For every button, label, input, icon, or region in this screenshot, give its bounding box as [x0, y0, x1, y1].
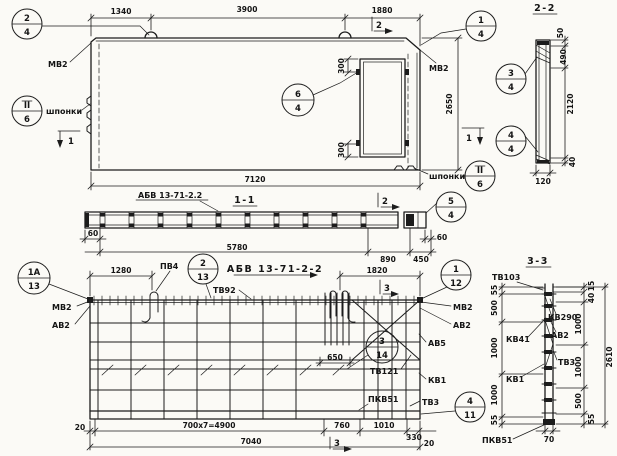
panel-outline [91, 38, 420, 170]
callout-3-14-num: 3 [379, 337, 385, 347]
cut1-right-arrow-icon [477, 137, 483, 145]
callout-3-4: 3 4 [496, 57, 537, 94]
mark-mv2-plan-left: МВ2 [52, 303, 72, 312]
dim-300-top: 300 [337, 58, 346, 74]
panel-inner-lines [96, 41, 417, 168]
kv41-leader [528, 318, 546, 337]
callout-1a-13-num: 1А [28, 268, 41, 278]
callout-4-4-sheet: 4 [508, 145, 514, 155]
keys-right-label: шпонки [429, 172, 465, 181]
dim-700x7: 700x7=4900 [183, 421, 236, 430]
dim-1340: 1340 [111, 7, 132, 16]
callout-2-13-sheet: 13 [197, 273, 209, 283]
cut2-mid-label: 2 [382, 197, 388, 207]
dim-2650: 2650 [445, 94, 454, 115]
mark-mv2-right: МВ2 [429, 64, 449, 73]
dim-1880: 1880 [372, 6, 393, 15]
dim-2650-lines [422, 38, 462, 170]
cut2-top-arrow-icon [385, 28, 393, 34]
dim-500-r: 500 [574, 393, 583, 409]
mark-pv4: ПВ4 [160, 262, 179, 271]
callout-5-4-num: 5 [448, 197, 454, 207]
section-cut-1-left: 1 [57, 131, 80, 148]
callout-1-4-leader [421, 26, 496, 45]
dim-20-left: 20 [75, 423, 85, 432]
callout-2-13-num: 2 [200, 259, 206, 269]
dim-60-right: 60 [437, 233, 447, 242]
section-2-2-dim-120-lines [530, 165, 556, 176]
dim-1280: 1280 [111, 266, 132, 275]
dim-1000-r1: 1000 [574, 314, 583, 335]
keys-right-leader [414, 168, 428, 174]
cut1-right-label: 1 [466, 134, 472, 144]
keys-left-label: шпонки [46, 107, 82, 116]
plan-loop1-icon [142, 292, 158, 322]
section-cut-3-bottom: 3 [330, 437, 352, 452]
lifting-loop-icon [145, 32, 351, 38]
mark-av2-plan-left: АВ2 [52, 321, 70, 330]
callout-5-4: 5 4 [426, 192, 466, 222]
dim-door-300-lines [344, 59, 358, 157]
cut3-top-label: 3 [384, 284, 390, 294]
dim-760: 760 [334, 421, 350, 430]
callout-II-6-left: II 6 [12, 96, 42, 126]
section-cut-3-top: 3 [380, 280, 399, 297]
dim-300-bottom: 300 [337, 142, 346, 158]
strip-left-cap [85, 213, 89, 227]
mark-kv1-plan: КВ1 [428, 376, 447, 385]
callout-1-4: 1 4 [421, 11, 496, 45]
dim-1820: 1820 [367, 266, 388, 275]
section-3-3-title: 3-3 [527, 256, 549, 267]
reinforcement-plan-view: АБВ 13-71-2-2 1280 1820 ПВ4 ТВ92 3 [52, 262, 473, 452]
dim-1010: 1010 [374, 421, 395, 430]
dim-7120: 7120 [245, 175, 266, 184]
dim-2120: 2120 [566, 94, 575, 115]
mark-pkv51-33: ПКВ51 [482, 436, 513, 445]
callout-6-4: 6 4 [282, 72, 358, 116]
cut2-top-label: 2 [376, 21, 382, 31]
callout-1a-13-sheet: 13 [28, 282, 40, 292]
section-2-2-walls [539, 44, 546, 160]
drawing-sheet: 1340 3900 1880 2 300 300 2650 7120 МВ2 М… [0, 0, 617, 456]
dim-60-left: 60 [88, 229, 98, 238]
dim-70: 70 [544, 435, 554, 444]
mv2-plan-right-leader [421, 302, 451, 306]
callout-1a-13: 1А 13 [18, 262, 88, 299]
door-opening-inner [364, 62, 402, 154]
tv3-plan-leader [410, 401, 420, 406]
callout-1-4-num: 1 [478, 16, 484, 26]
mark-pkv51-plan: ПКВ51 [368, 395, 399, 404]
section-2-2-title: 2-2 [534, 3, 556, 14]
callout-II-6-right-sheet: 6 [477, 180, 483, 190]
callout-1-12: 1 12 [421, 260, 471, 299]
door-opening [360, 59, 405, 157]
panel-working-drawing: 1340 3900 1880 2 300 300 2650 7120 МВ2 М… [0, 0, 617, 456]
mark-tv3-plan: ТВ3 [422, 398, 439, 407]
cut3-bottom-label: 3 [334, 439, 340, 449]
callout-5-4-leader [426, 203, 466, 213]
dim-40: 40 [568, 157, 577, 167]
dim-1000-r2: 1000 [574, 357, 583, 378]
cut2-mid-arrow-icon [392, 204, 400, 210]
dim-1000-l1: 1000 [490, 338, 499, 359]
panel-dashed-edges [99, 44, 408, 168]
callout-1-12-leader [421, 275, 471, 299]
mark-tv103: ТВ103 [492, 273, 520, 282]
tv92-leader [239, 290, 251, 299]
dim-500-l: 500 [490, 300, 499, 316]
door-edge-marks [356, 69, 409, 146]
callout-4-11: 4 11 [421, 392, 485, 422]
slab-mark-leader [136, 200, 218, 211]
av2-plan-left-leader [75, 306, 90, 324]
mark-av2-plan-right: АВ2 [453, 321, 471, 330]
section-1-1-title: 1-1 [234, 195, 256, 206]
cut1-left-label: 1 [68, 137, 74, 147]
callout-4-11-sheet: 11 [464, 411, 476, 421]
dim-55-r: 55 [587, 414, 596, 424]
callout-1-12-sheet: 12 [450, 279, 462, 289]
plan-lap-hooks [102, 365, 344, 375]
strip-ribs [100, 212, 366, 228]
kv1-33-leader [521, 364, 544, 377]
pv4-leader [156, 271, 170, 291]
dim-450: 450 [413, 255, 429, 264]
dim-2610: 2610 [605, 347, 614, 368]
callout-5-4-sheet: 4 [448, 211, 454, 221]
callout-4-4: 4 4 [496, 126, 538, 156]
s33-left-dim-line [499, 283, 543, 428]
callout-II-6-left-sheet: 6 [24, 115, 30, 125]
callout-3-4-leader [496, 57, 537, 79]
mark-tv3-33: ТВ3 [558, 358, 575, 367]
strip-dim-lines [80, 228, 436, 256]
section-3-3-view: 3-3 ТВ103 КВ290 АВ2 КВ41 ТВ3 КВ1 ПКВ51 5… [482, 256, 614, 445]
dim-55-tl: 55 [490, 285, 499, 295]
section-cut-1-right: 1 [462, 128, 484, 145]
keys-left-leader [82, 104, 90, 110]
callout-4-4-leader [496, 136, 538, 152]
callout-3-4-sheet: 4 [508, 83, 514, 93]
plan-horizontal-bars [90, 323, 420, 390]
mark-tv92: ТВ92 [213, 286, 236, 295]
dim-5780: 5780 [227, 243, 248, 252]
dim-50: 50 [556, 28, 565, 38]
dim-3900: 3900 [237, 5, 258, 14]
callout-2-4-sheet: 4 [24, 28, 30, 38]
section-2-2-view: 2-2 50 490 2120 40 120 [530, 3, 577, 186]
callout-II-6-left-num: II [24, 101, 30, 111]
callout-3-14: 3 14 [347, 331, 398, 369]
mark-av2-33: АВ2 [551, 331, 569, 340]
section-1-1-view: АБВ 13-71-2.2 1-1 60 5780 890 450 60 2 [80, 191, 447, 264]
plan-dense-bars [325, 293, 349, 345]
plan-title: АБВ 13-71-2-2 [227, 264, 323, 275]
mark-tv121: ТВ121 [370, 367, 399, 376]
av2-plan-right-leader [420, 308, 451, 324]
callout-1-12-num: 1 [453, 265, 459, 275]
dim-330: 330 [406, 433, 422, 442]
dim-1000-l2: 1000 [490, 385, 499, 406]
dim-15: 15 [587, 281, 596, 291]
mark-av5: АВ5 [428, 339, 446, 348]
dim-120: 120 [535, 177, 551, 186]
section-cut-2-mid: 2 [378, 193, 400, 210]
callout-3-4-num: 3 [508, 69, 514, 79]
section-2-2-hatch [536, 45, 550, 164]
dim-55-bl: 55 [490, 415, 499, 425]
callout-1-4-sheet: 4 [478, 30, 484, 40]
dim-7040: 7040 [241, 437, 262, 446]
mark-mv2-plan-right: МВ2 [453, 303, 473, 312]
plan-top-ticks [94, 296, 414, 305]
section-2-2-body [536, 40, 550, 163]
callout-3-14-sheet: 14 [376, 351, 388, 361]
callout-6-4-sheet: 4 [295, 104, 301, 114]
pkv51-33-leader [513, 424, 546, 439]
cut1-left-arrow-icon [57, 140, 63, 148]
callout-II-6-right-num: II [477, 166, 483, 176]
section-3-3-top-bars [537, 287, 584, 292]
section-cut-2-top: 2 [372, 17, 393, 34]
callout-2-4-leader [12, 24, 149, 35]
dim-490: 490 [559, 49, 568, 65]
mv2-left-leader [70, 43, 91, 62]
elevation-view: 1340 3900 1880 2 300 300 2650 7120 МВ2 М… [46, 5, 484, 190]
mark-mv2-left: МВ2 [48, 60, 68, 69]
dim-890: 890 [380, 255, 396, 264]
callout-II-6-right: II 6 [465, 161, 495, 191]
callout-6-4-leader [282, 72, 358, 100]
tv103-leader [517, 282, 543, 290]
slab-mark-label: АБВ 13-71-2.2 [138, 191, 202, 200]
strip-right-bolt [406, 214, 414, 226]
callout-4-11-num: 4 [467, 397, 473, 407]
callout-4-4-num: 4 [508, 131, 514, 141]
callout-2-4-num: 2 [24, 14, 30, 24]
dim-650: 650 [327, 353, 343, 362]
dim-40: 40 [587, 293, 596, 303]
callout-6-4-num: 6 [295, 90, 301, 100]
dim-20-right: 20 [424, 439, 434, 448]
mark-kv41: КВ41 [506, 335, 530, 344]
mv2-plan-left-leader [77, 301, 90, 306]
